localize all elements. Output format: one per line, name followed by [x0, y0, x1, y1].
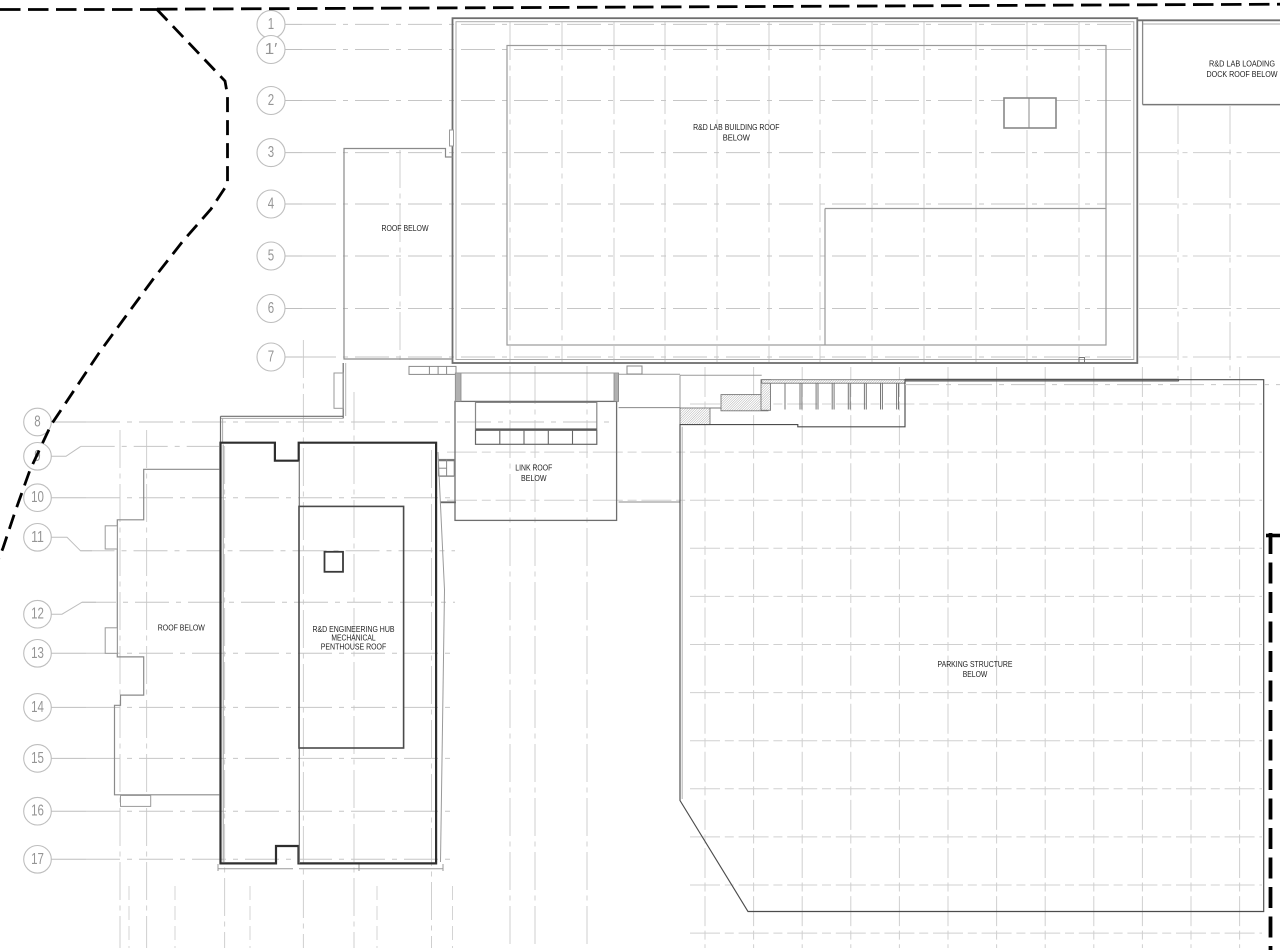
- svg-text:PENTHOUSE ROOF: PENTHOUSE ROOF: [321, 642, 387, 652]
- svg-text:16: 16: [31, 803, 44, 820]
- svg-text:BELOW: BELOW: [521, 473, 547, 483]
- svg-text:15: 15: [31, 750, 44, 767]
- svg-text:14: 14: [31, 699, 44, 716]
- svg-text:BELOW: BELOW: [723, 132, 750, 142]
- svg-text:R&D LAB BUILDING ROOF: R&D LAB BUILDING ROOF: [693, 122, 779, 132]
- svg-text:10: 10: [31, 489, 44, 506]
- svg-text:7: 7: [268, 349, 274, 366]
- svg-text:LINK ROOF: LINK ROOF: [515, 463, 552, 473]
- svg-text:PARKING STRUCTURE: PARKING STRUCTURE: [938, 659, 1013, 669]
- svg-text:17: 17: [31, 851, 44, 868]
- svg-text:ROOF BELOW: ROOF BELOW: [158, 623, 205, 633]
- svg-text:3: 3: [268, 144, 274, 161]
- svg-text:4: 4: [268, 196, 275, 213]
- svg-text:11: 11: [31, 529, 44, 546]
- svg-text:ROOF BELOW: ROOF BELOW: [382, 223, 429, 233]
- svg-text:2: 2: [268, 92, 274, 109]
- svg-text:1′: 1′: [265, 41, 278, 58]
- svg-text:5: 5: [268, 248, 274, 265]
- svg-text:8: 8: [34, 414, 40, 431]
- svg-text:6: 6: [268, 300, 274, 317]
- svg-text:R&D LAB LOADING: R&D LAB LOADING: [1209, 59, 1275, 69]
- svg-text:DOCK ROOF BELOW: DOCK ROOF BELOW: [1207, 69, 1278, 79]
- svg-text:BELOW: BELOW: [963, 669, 988, 679]
- svg-text:1: 1: [268, 16, 274, 33]
- svg-text:12: 12: [31, 606, 44, 623]
- svg-text:13: 13: [31, 645, 44, 662]
